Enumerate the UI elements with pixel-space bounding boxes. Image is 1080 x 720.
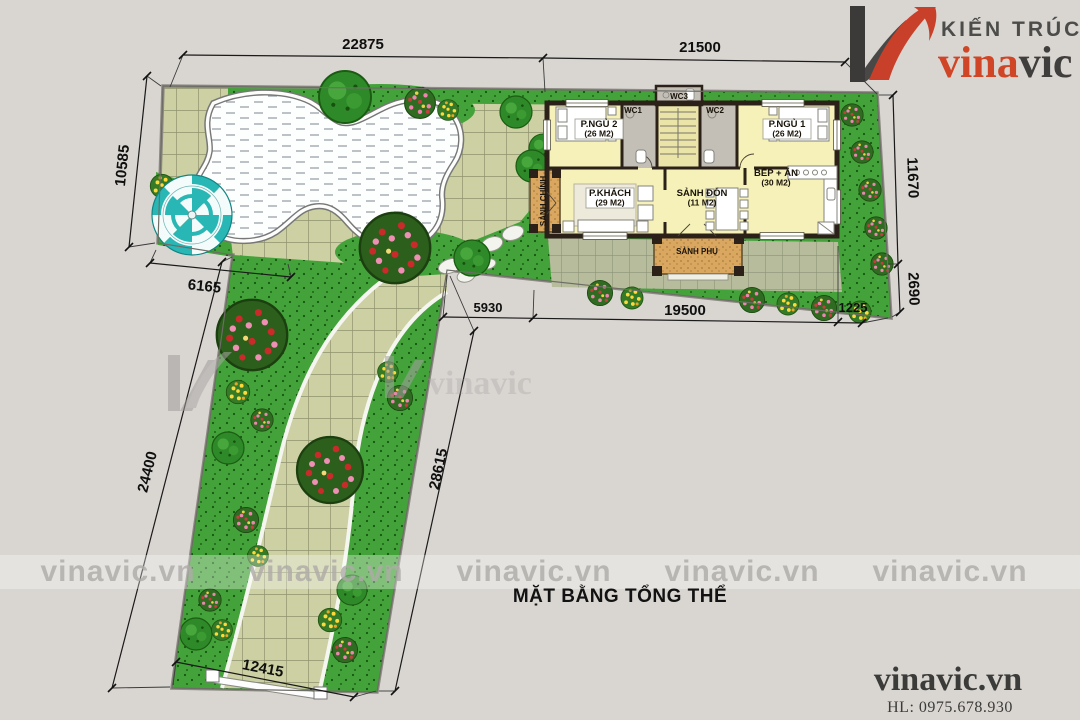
tree-icon [319,71,371,123]
footer-hotline: HL: 0975.678.930 [887,699,1013,716]
shrub-icon [587,280,612,305]
flower-tree-icon [360,213,430,283]
dim-top-right: 21500 [679,39,721,56]
tree-icon [212,432,244,464]
footer-website: vinavic.vn [874,661,1022,698]
shrub-icon [332,637,357,662]
shrub-icon [405,88,436,119]
room-label-wc3: WC3 [670,92,688,101]
shrub-icon [212,620,233,641]
watermark-text: vinavic.vn [40,555,195,588]
room-area-kitchen: (30 M2) [761,178,790,188]
site-plan-image: P.NGỦ 2 (26 M2) P.NGỦ 1 (26 M2) P.KHÁCH … [0,0,1080,720]
room-area-hall: (11 M2) [688,198,717,208]
shrub-icon [318,608,341,631]
tree-icon [500,96,532,128]
site-plan-canvas: P.NGỦ 2 (26 M2) P.NGỦ 1 (26 M2) P.KHÁCH … [0,0,1080,720]
brand-name-primary: vina [938,38,1019,87]
room-area-bedroom1: (26 M2) [772,129,801,139]
dim-top-left: 22875 [342,36,384,53]
room-area-bedroom2: (26 M2) [584,129,613,139]
shrub-icon [251,409,273,431]
dim-right-upper: 11670 [903,157,921,198]
room-area-living: (29 M2) [595,198,624,208]
shrub-icon [841,104,863,126]
dim-left-offset: 6165 [187,276,222,296]
shrub-icon [859,179,881,201]
watermark-text: vinavic.vn [872,555,1027,588]
dim-right-lower: 2690 [904,272,922,306]
room-label-wc1: WC1 [624,106,642,115]
brand-name-secondary: vic [1019,38,1073,87]
shrub-icon [226,380,249,403]
shrub-icon [233,507,258,532]
room-label-wc2: WC2 [706,106,724,115]
shrub-icon [199,589,221,611]
watermark-text: vinavic.vn [456,555,611,588]
dim-front-left: 5930 [474,300,503,315]
shrub-icon [739,287,764,312]
footer-contact: vinavic.vn HL: 0975.678.930 [874,661,1022,716]
dim-front-right: 1225 [839,300,868,315]
flower-tree-icon [217,300,287,370]
side-porch [652,234,744,280]
watermark-text: vinavic.vn [248,555,403,588]
room-label-main-porch: SẢNH CHÍNH [539,176,548,226]
watermark-logo-text: vinavic [428,365,532,402]
tree-icon [180,618,212,650]
shrub-icon [851,141,873,163]
shrub-icon [438,100,459,121]
tree-icon [454,240,490,276]
shrub-icon [777,293,799,315]
watermark-band: vinavic.vn vinavic.vn vinavic.vn vinavic… [0,555,1080,589]
plan-title: MẶT BẰNG TỔNG THỂ [513,585,727,607]
shrub-icon [811,295,836,320]
brand-name: vinavic [938,38,1072,87]
shrub-icon [865,217,887,239]
dim-front-mid: 19500 [664,302,706,319]
flower-tree-icon [297,437,363,503]
umbrella-icon [152,175,232,255]
room-label-side-porch: SẢNH PHỤ [676,247,718,256]
watermark-text: vinavic.vn [664,555,819,588]
